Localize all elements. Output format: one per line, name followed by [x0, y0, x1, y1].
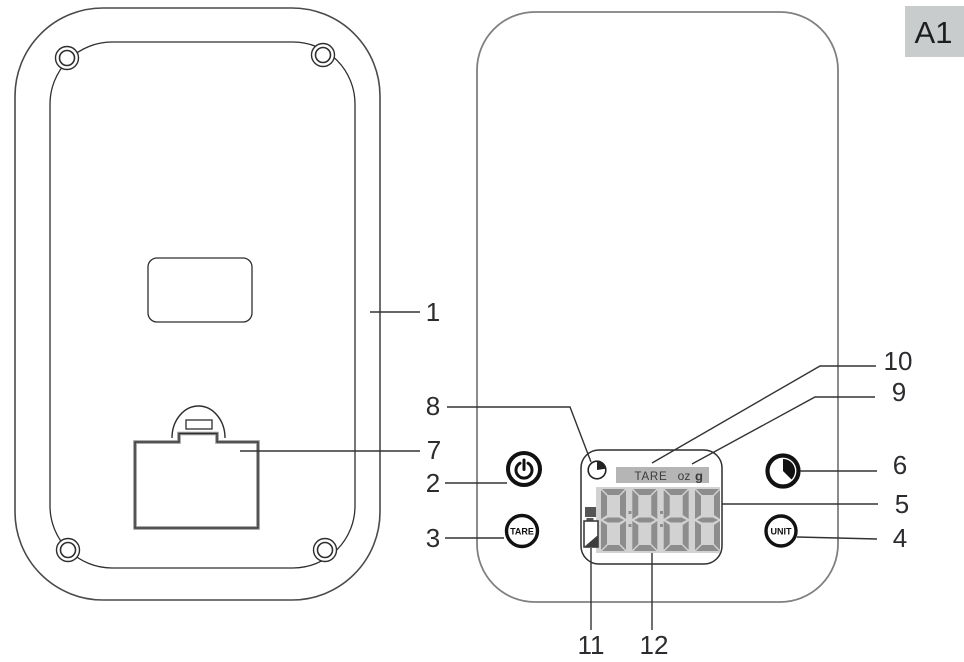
unit-button: UNIT	[766, 516, 796, 546]
pie-icon	[768, 456, 799, 487]
power-button	[508, 453, 540, 485]
callout-4: 4	[893, 523, 907, 553]
g-indicator: g	[695, 469, 703, 484]
lcd-display: TARE oz g	[581, 450, 722, 564]
callout-1: 1	[426, 297, 440, 327]
battery-latch-tab	[186, 420, 212, 429]
tare-button: TARE	[507, 516, 538, 547]
figure-badge: A1	[905, 6, 964, 57]
callout-3: 3	[426, 523, 440, 553]
manual-figure-a1: TARE UNIT TARE oz g	[0, 0, 964, 662]
indicator-bar: TARE oz g	[616, 467, 709, 484]
battery-indicator	[584, 507, 598, 547]
rear-view	[15, 8, 380, 600]
rating-label-plate	[148, 258, 252, 322]
screw-bottom-right	[314, 539, 337, 562]
callout-6: 6	[893, 450, 907, 480]
callout-11: 11	[578, 630, 605, 660]
front-view: TARE UNIT TARE oz g	[477, 12, 838, 602]
tare-indicator: TARE	[634, 471, 667, 483]
digit-display	[596, 487, 720, 553]
callout-9: 9	[892, 377, 906, 407]
screw-bottom-left	[57, 539, 80, 562]
figure-label: A1	[915, 15, 953, 50]
screw-top-right	[312, 44, 335, 67]
callout-5: 5	[895, 489, 909, 519]
scale-diagram: TARE UNIT TARE oz g	[0, 0, 964, 662]
weight-block-icon	[585, 507, 596, 517]
callout-2: 2	[426, 468, 440, 498]
battery-door-outer	[135, 434, 258, 529]
low-battery-icon	[584, 518, 598, 547]
callout-12: 12	[640, 630, 669, 660]
tare-button-label: TARE	[510, 527, 534, 537]
oz-indicator: oz	[678, 469, 691, 483]
callout-10: 10	[884, 346, 913, 376]
callout-8: 8	[426, 391, 440, 421]
screw-top-left	[56, 47, 79, 70]
unit-button-label: UNIT	[771, 527, 792, 537]
clock-icon	[588, 461, 606, 479]
callout-7: 7	[427, 435, 441, 465]
